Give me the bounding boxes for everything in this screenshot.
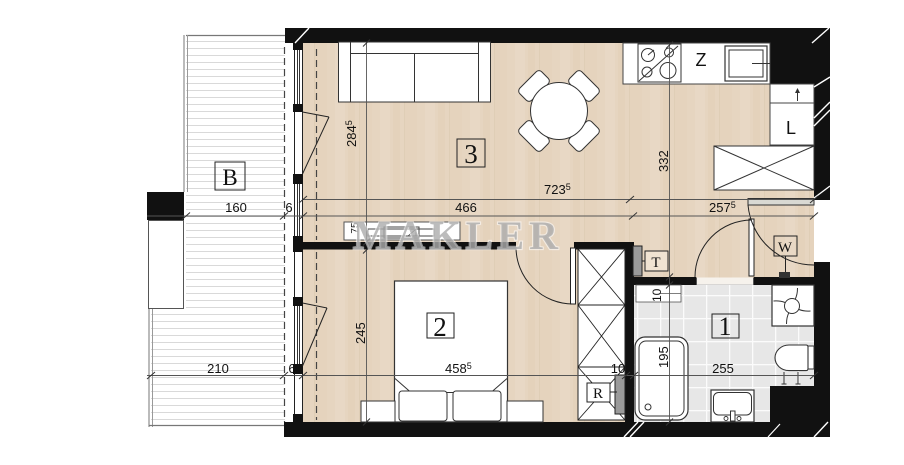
svg-text:1: 1 xyxy=(719,312,732,341)
svg-text:L: L xyxy=(786,118,796,138)
svg-text:3: 3 xyxy=(464,139,478,169)
svg-text:6: 6 xyxy=(285,200,292,215)
svg-text:10: 10 xyxy=(650,288,664,302)
svg-text:255: 255 xyxy=(712,361,734,376)
svg-text:MAKLER: MAKLER xyxy=(353,213,563,258)
svg-text:Z: Z xyxy=(696,50,707,70)
svg-text:6: 6 xyxy=(288,361,295,376)
svg-text:245: 245 xyxy=(353,322,368,344)
svg-text:T: T xyxy=(651,255,660,271)
svg-text:2: 2 xyxy=(433,312,447,342)
svg-text:210: 210 xyxy=(207,361,229,376)
svg-text:195: 195 xyxy=(656,346,671,368)
svg-text:10: 10 xyxy=(611,361,625,376)
svg-text:160: 160 xyxy=(225,200,247,215)
svg-text:332: 332 xyxy=(656,150,671,172)
svg-text:R: R xyxy=(593,386,603,402)
svg-text:B: B xyxy=(222,165,237,190)
svg-text:W: W xyxy=(778,240,793,256)
